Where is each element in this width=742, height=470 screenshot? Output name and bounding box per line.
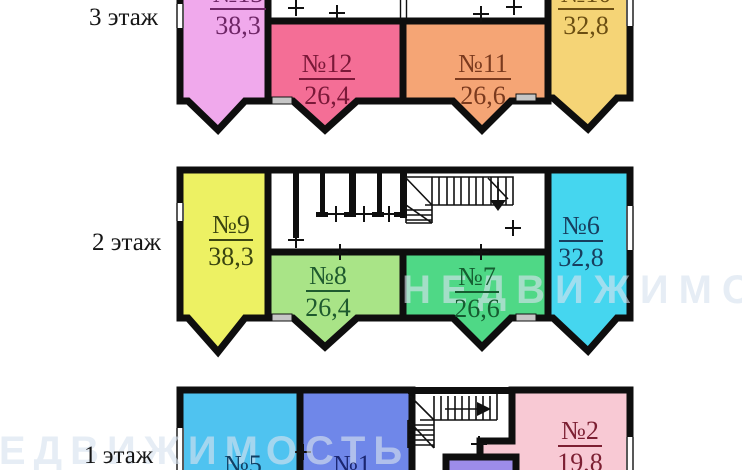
room-lower-center-shape	[446, 457, 516, 470]
room-8-shape	[268, 252, 403, 347]
room-10-shape	[548, 0, 630, 129]
floor-plan-canvas: НЕДВИЖИМОСТЬ НЕДВИЖИМОСТЬ 3 этаж 2 этаж …	[0, 0, 742, 470]
room-5-shape	[180, 390, 300, 470]
floor-1-label: 1 этаж	[84, 443, 153, 468]
floor-3-plan	[180, 0, 630, 130]
window-sill	[272, 97, 292, 104]
floor-1-plan	[180, 390, 630, 470]
window-sill	[516, 94, 536, 101]
window-sill	[272, 314, 292, 321]
room-6-shape	[548, 170, 630, 351]
room-1-shape	[300, 390, 412, 470]
room-9-shape	[180, 170, 268, 352]
room-12-shape	[268, 21, 403, 130]
floor-3-label: 3 этаж	[89, 5, 158, 30]
floor-2-label: 2 этаж	[92, 230, 161, 255]
floor-1-top-wall	[408, 387, 512, 394]
room-13-shape	[180, 0, 268, 130]
window-sill	[516, 314, 536, 321]
room-7-shape	[403, 252, 548, 347]
stair-arrow-right-icon	[477, 402, 491, 416]
room-11-shape	[403, 21, 548, 130]
